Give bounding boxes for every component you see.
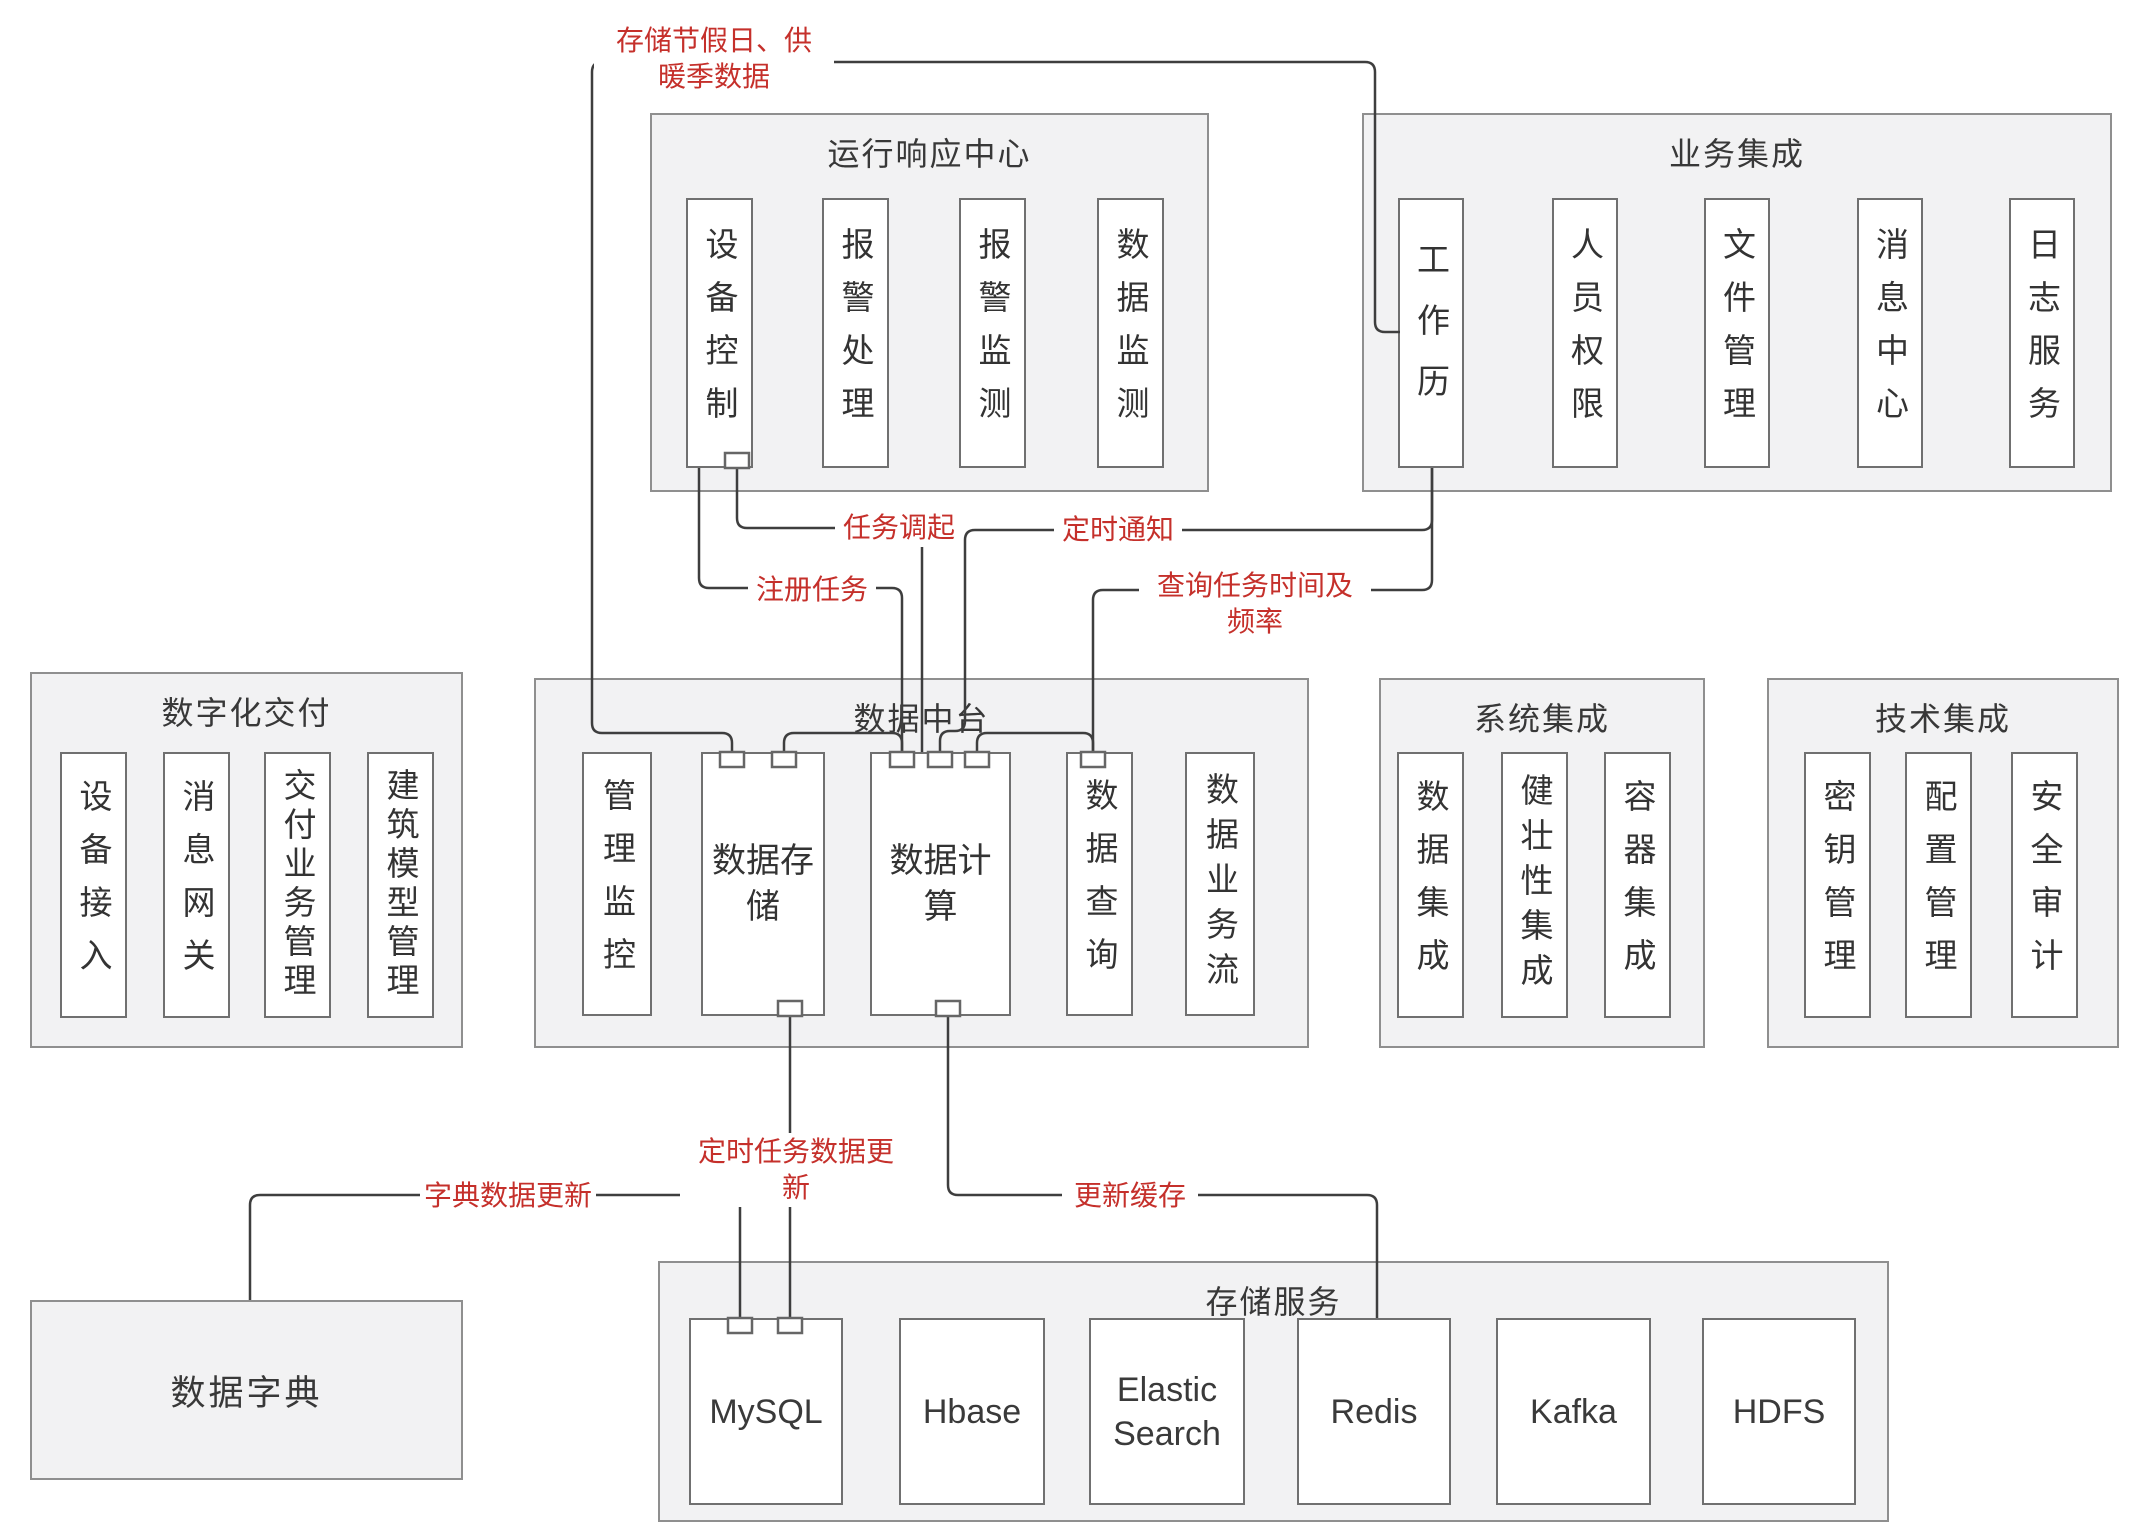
node-data-monitoring: 数据监测 [1097, 198, 1164, 468]
edge-label-timed-data-update: 定时任务数据更 新 [680, 1133, 912, 1207]
node-message-center: 消息中心 [1857, 198, 1923, 468]
section-storage-service-title: 存储服务 [660, 1277, 1887, 1323]
node-delivery-business-management: 交付业务管理 [264, 752, 331, 1018]
node-data-storage: 数据存储 [701, 752, 825, 1016]
node-data-integration: 数据集成 [1397, 752, 1464, 1018]
section-system-integration-title: 系统集成 [1381, 694, 1703, 740]
node-building-model-management: 建筑模型管理 [367, 752, 434, 1018]
node-data-business-flow: 数据业务流 [1185, 752, 1255, 1016]
section-biz-integration-title: 业务集成 [1364, 129, 2110, 175]
node-personnel-permission: 人员权限 [1552, 198, 1618, 468]
node-alarm-monitoring: 报警监测 [959, 198, 1026, 468]
node-work-calendar: 工作历 [1398, 198, 1464, 468]
section-data-platform-title: 数据中台 [536, 694, 1307, 740]
edge-label-invoke-task: 任务调起 [835, 509, 963, 547]
node-mysql: MySQL [689, 1318, 843, 1505]
node-hdfs: HDFS [1702, 1318, 1856, 1505]
node-data-computing: 数据计算 [870, 752, 1011, 1016]
node-data-query: 数据查询 [1066, 752, 1133, 1016]
edge-label-query-task-schedule: 查询任务时间及 频率 [1139, 567, 1371, 641]
edge-label-dict-data-update: 字典数据更新 [420, 1177, 596, 1215]
architecture-diagram: 运行响应中心 业务集成 数字化交付 数据中台 系统集成 技术集成 存储服务 数据… [0, 0, 2132, 1538]
node-file-management: 文件管理 [1704, 198, 1770, 468]
node-hbase: Hbase [899, 1318, 1045, 1505]
node-config-management: 配置管理 [1905, 752, 1972, 1018]
section-data-dictionary: 数据字典 [30, 1300, 463, 1480]
edge-label-store-seasonal: 存储节假日、供 暖季数据 [594, 22, 834, 96]
node-redis: Redis [1297, 1318, 1451, 1505]
node-key-management: 密钥管理 [1804, 752, 1871, 1018]
section-tech-integration-title: 技术集成 [1769, 694, 2117, 740]
section-op-center-title: 运行响应中心 [652, 129, 1207, 175]
node-management-monitoring: 管理监控 [582, 752, 652, 1016]
node-robustness-integration: 健壮性集成 [1501, 752, 1568, 1018]
node-log-service: 日志服务 [2009, 198, 2075, 468]
node-alarm-handling: 报警处理 [822, 198, 889, 468]
edge-label-update-cache: 更新缓存 [1062, 1177, 1198, 1215]
node-container-integration: 容器集成 [1604, 752, 1671, 1018]
node-device-control: 设备控制 [686, 198, 753, 468]
section-digital-delivery-title: 数字化交付 [32, 688, 461, 734]
data-dictionary-label: 数据字典 [32, 1302, 461, 1478]
node-kafka: Kafka [1496, 1318, 1651, 1505]
edge-label-timed-notify: 定时通知 [1054, 511, 1182, 549]
node-device-access: 设备接入 [60, 752, 127, 1018]
node-elastic-search: Elastic Search [1089, 1318, 1245, 1505]
edge-label-register-task: 注册任务 [748, 571, 876, 609]
node-security-audit: 安全审计 [2011, 752, 2078, 1018]
node-message-gateway: 消息网关 [163, 752, 230, 1018]
